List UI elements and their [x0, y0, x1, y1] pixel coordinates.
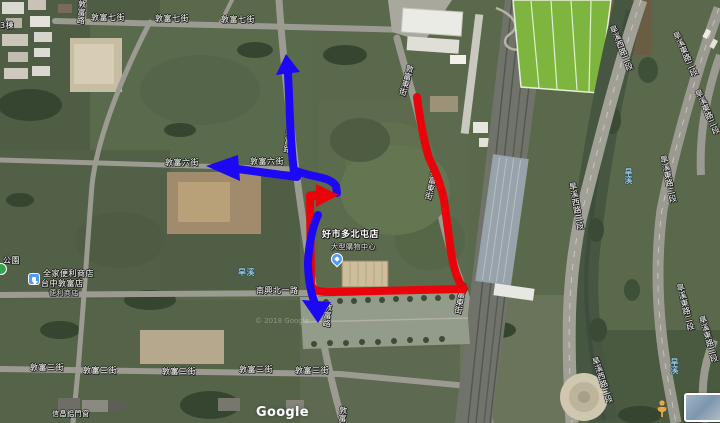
street-label: 敦富三街	[295, 366, 329, 375]
street-label: 敦富七街	[221, 15, 255, 24]
poi-park-name[interactable]: 公園	[3, 256, 20, 265]
street-label: 南興北一路	[256, 286, 299, 295]
street-label: 敦富三街	[30, 363, 64, 372]
street-label-vertical: 敦富路	[283, 129, 294, 154]
poi-shop-name[interactable]: 信昌鋁門窗	[52, 410, 90, 419]
street-label: 敦富三街	[83, 366, 117, 375]
street-label: 敦富六街	[165, 158, 199, 167]
river-label: 旱溪	[238, 268, 255, 277]
street-label: 敦富三街	[239, 365, 273, 374]
pegman-icon[interactable]	[656, 400, 668, 418]
imagery-thumbnail[interactable]	[684, 393, 720, 422]
street-label-vertical: 敦富路	[322, 303, 332, 328]
street-label: 敦富三街	[162, 367, 196, 376]
familymart-pin-icon[interactable]	[28, 273, 40, 285]
poi-familymart-category: 便利商店	[49, 289, 79, 298]
map-corner-controls	[648, 396, 720, 423]
poi-familymart-branch: 台中敦富店	[41, 279, 84, 288]
imagery-copyright: © 2018 Google	[255, 317, 309, 325]
street-label: 敦富六街	[250, 157, 284, 166]
satellite-imagery	[0, 0, 720, 423]
sports-field	[513, 0, 611, 93]
river-label: 旱溪	[624, 168, 632, 184]
street-label: 敦富七街	[155, 14, 189, 23]
street-label: 敦富七街	[91, 13, 125, 22]
poi-costco-category: 大型購物中心	[331, 243, 376, 252]
poi-costco-name[interactable]: 好市多北屯店	[322, 231, 379, 240]
poi-familymart-name[interactable]: 全家便利商店	[43, 269, 94, 278]
street-label-vertical: 敦富路	[76, 0, 86, 24]
satellite-map-canvas[interactable]: 敦富七街 敦富七街 敦富七街 敦富六街 敦富六街 南興北一路 敦富三街 敦富三街…	[0, 0, 720, 423]
street-label-vertical: 敦富路	[337, 406, 347, 423]
river-label: 旱溪	[670, 358, 678, 374]
google-logo: Google	[256, 405, 309, 420]
building-label: 3棟	[0, 21, 14, 30]
